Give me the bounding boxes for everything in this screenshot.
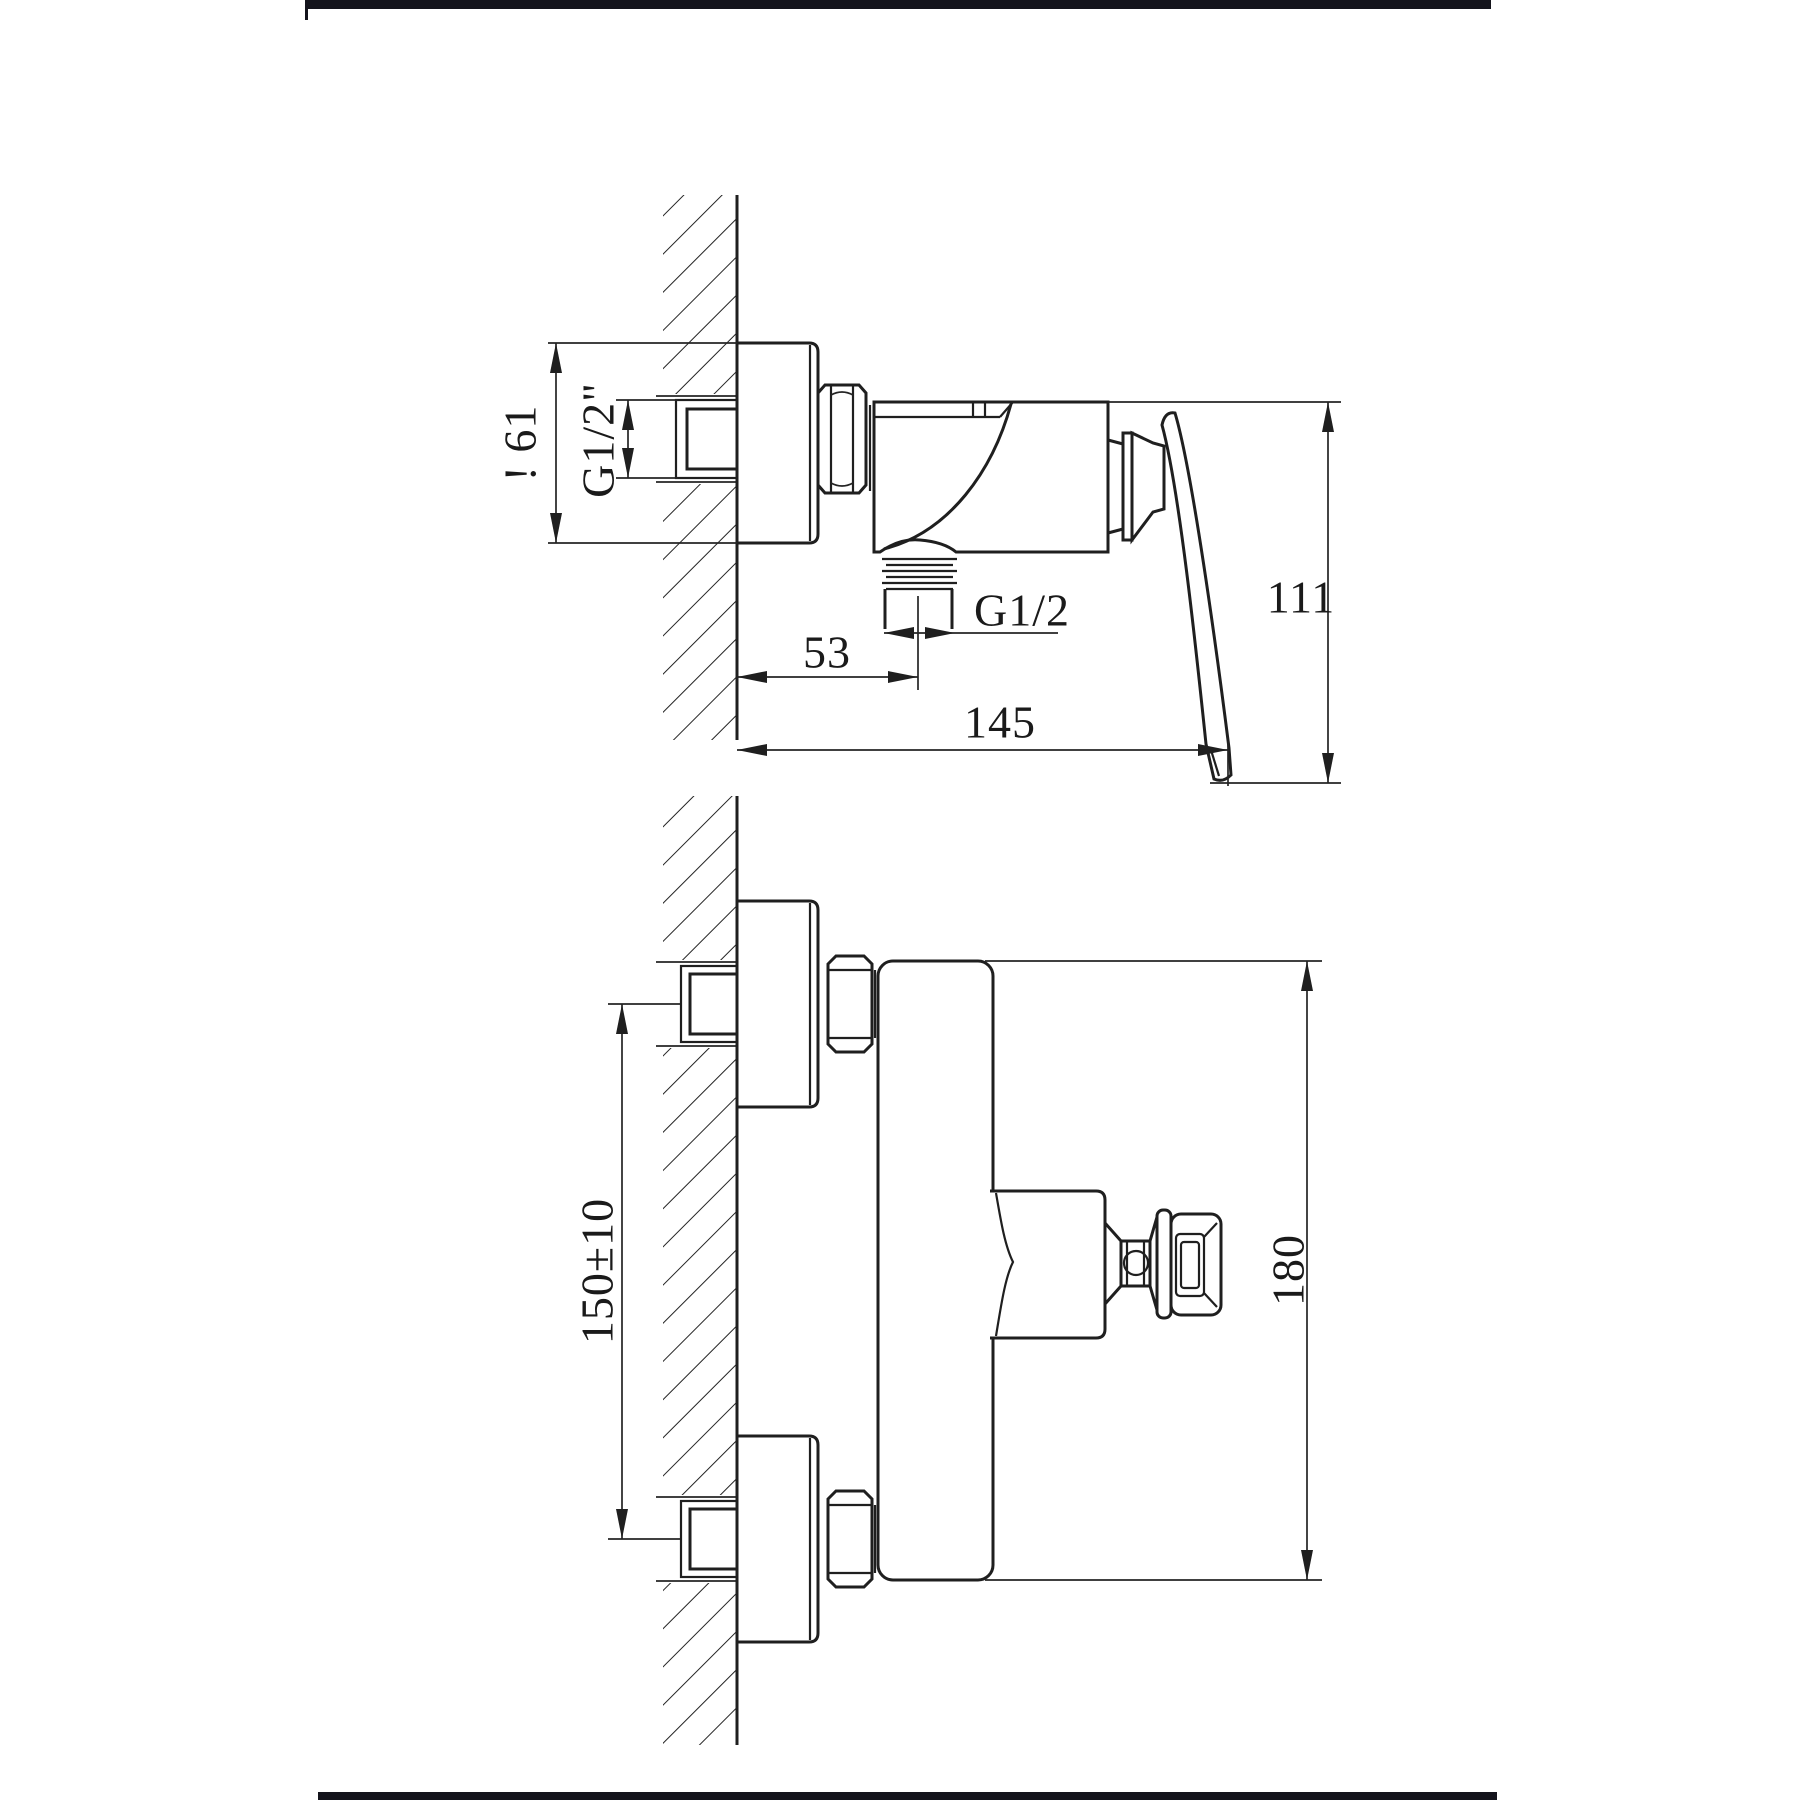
dim-label-outlet-thread: G1/2 xyxy=(974,585,1070,636)
wall-bracket-lower xyxy=(737,1436,818,1642)
dim-label-bracket-height: ! 61 xyxy=(495,405,546,482)
dim-label-total-depth: 145 xyxy=(964,697,1036,748)
knob-ring xyxy=(1157,1210,1171,1318)
lever-handle-side xyxy=(1108,413,1231,781)
dim-label-inlet-spacing: 150±10 xyxy=(572,1198,623,1344)
inlet-pipe-side xyxy=(676,400,737,478)
hex-nut-side xyxy=(818,385,870,493)
dim-label-front-height: 180 xyxy=(1263,1234,1314,1306)
lever-blade xyxy=(1162,413,1231,781)
wall-bracket-upper xyxy=(737,901,818,1107)
front-view: 150±10 180 xyxy=(572,796,1323,1745)
page-border-bottom xyxy=(318,1792,1497,1800)
dim-label-inlet-thread: G1/2" xyxy=(573,382,624,498)
inlet-pipe-lower xyxy=(681,1501,737,1577)
handle-block xyxy=(990,1191,1105,1338)
dim-outlet-offset: 53 xyxy=(737,627,918,684)
hex-nut-lower xyxy=(828,1491,875,1587)
dim-label-side-height: 111 xyxy=(1267,572,1336,623)
outlet-thread-side xyxy=(882,559,957,690)
handle-front xyxy=(990,1191,1221,1338)
mixer-body-front xyxy=(878,961,993,1580)
dim-outlet-thread: G1/2 xyxy=(884,585,1070,640)
inlet-pipe-upper xyxy=(681,966,737,1042)
dim-label-outlet-offset: 53 xyxy=(803,627,851,678)
side-view: ! 61 G1/2" G1/2 53 xyxy=(495,195,1342,786)
page-border-top xyxy=(305,0,1491,20)
technical-drawing: ! 61 G1/2" G1/2 53 xyxy=(0,0,1800,1800)
drawing-page: ! 61 G1/2" G1/2 53 xyxy=(0,0,1800,1800)
mixer-body-side xyxy=(874,402,1108,552)
wall-hatch-front xyxy=(654,796,737,1745)
hex-nut-upper xyxy=(828,956,875,1052)
handle-stem-collar xyxy=(1121,1241,1150,1286)
dim-total-depth: 145 xyxy=(737,697,1228,787)
handle-pivot xyxy=(1132,433,1164,540)
wall-bracket-side xyxy=(737,343,818,543)
